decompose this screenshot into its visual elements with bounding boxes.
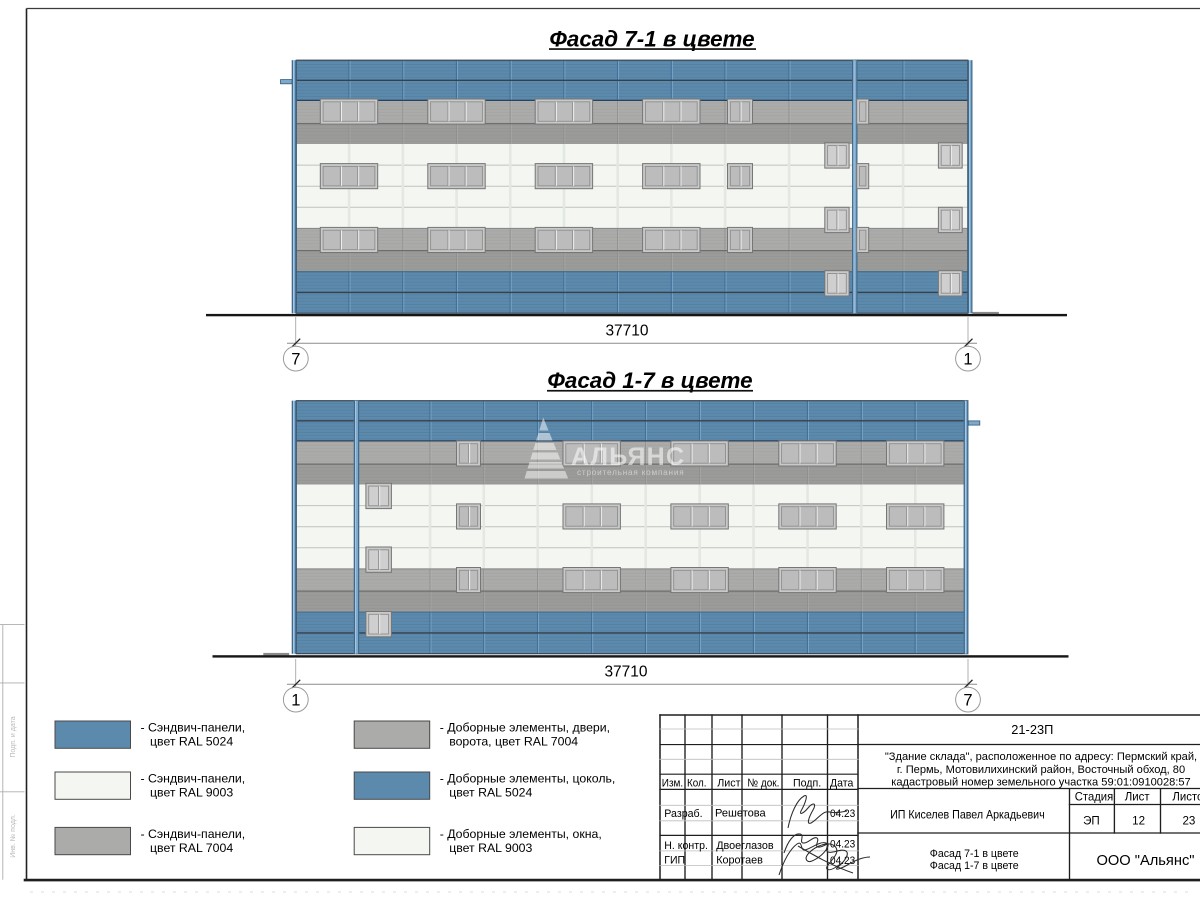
svg-text:Фасад 7-1 в цвете: Фасад 7-1 в цвете <box>930 848 1019 860</box>
svg-text:Фасад 1-7 в цвете: Фасад 1-7 в цвете <box>547 368 752 393</box>
svg-text:Двоеглазов: Двоеглазов <box>716 840 773 852</box>
svg-text:Кол.: Кол. <box>687 778 707 790</box>
svg-text:цвет RAL 5024: цвет RAL 5024 <box>150 735 233 749</box>
svg-text:ГИП: ГИП <box>664 855 685 867</box>
svg-text:04.23: 04.23 <box>830 839 855 851</box>
svg-text:ворота, цвет RAL 7004: ворота, цвет RAL 7004 <box>449 735 578 749</box>
svg-text:Лист: Лист <box>717 778 741 790</box>
svg-text:г. Пермь, Мотовилихинский райо: г. Пермь, Мотовилихинский район, Восточн… <box>897 764 1185 776</box>
svg-text:Изм.: Изм. <box>662 778 683 790</box>
svg-text:04.23: 04.23 <box>830 808 855 820</box>
svg-text:Подп. и дата: Подп. и дата <box>10 716 17 757</box>
svg-text:21-23П: 21-23П <box>1011 722 1053 737</box>
svg-text:7: 7 <box>291 351 300 369</box>
svg-text:цвет RAL 9003: цвет RAL 9003 <box>449 841 532 855</box>
svg-text:ИП Киселев Павел Аркадьевич: ИП Киселев Павел Аркадьевич <box>890 808 1045 822</box>
svg-text:Разраб.: Разраб. <box>664 808 702 820</box>
svg-text:Стадия: Стадия <box>1075 790 1113 804</box>
svg-text:АЛЬЯНС: АЛЬЯНС <box>571 443 685 471</box>
svg-text:кадастровый номер земельного у: кадастровый номер земельного участка 59:… <box>891 777 1190 789</box>
svg-text:ЭП: ЭП <box>1083 815 1100 828</box>
svg-text:- Сэндвич-панели,: - Сэндвич-панели, <box>141 772 246 786</box>
svg-text:цвет RAL 5024: цвет RAL 5024 <box>449 786 532 800</box>
svg-text:Коротаев: Коротаев <box>716 855 763 867</box>
svg-text:1: 1 <box>291 692 300 710</box>
svg-text:Фасад 7-1 в цвете: Фасад 7-1 в цвете <box>549 27 754 52</box>
svg-text:- Сэндвич-панели,: - Сэндвич-панели, <box>141 721 246 735</box>
svg-text:37710: 37710 <box>605 323 648 340</box>
svg-text:23: 23 <box>1182 815 1195 828</box>
svg-text:Инв. № подл.: Инв. № подл. <box>10 814 17 858</box>
svg-text:Лист: Лист <box>1125 790 1150 804</box>
svg-text:7: 7 <box>963 692 972 710</box>
svg-text:Подп.: Подп. <box>793 778 821 790</box>
svg-text:цвет RAL 7004: цвет RAL 7004 <box>150 841 233 855</box>
svg-text:- Доборные элементы, цоколь,: - Доборные элементы, цоколь, <box>440 772 616 786</box>
svg-text:№ док.: № док. <box>747 778 779 790</box>
svg-text:строительная компания: строительная компания <box>577 468 684 477</box>
svg-text:- Доборные элементы, двери,: - Доборные элементы, двери, <box>440 721 610 735</box>
svg-text:Дата: Дата <box>830 778 854 790</box>
svg-text:12: 12 <box>1132 815 1145 828</box>
svg-text:Листов: Листов <box>1172 790 1200 804</box>
svg-text:цвет RAL 9003: цвет RAL 9003 <box>150 786 233 800</box>
svg-text:ООО "Альянс": ООО "Альянс" <box>1097 852 1195 869</box>
svg-text:Н. контр.: Н. контр. <box>664 840 708 852</box>
svg-text:- Доборные элементы, окна,: - Доборные элементы, окна, <box>440 827 602 841</box>
svg-text:1: 1 <box>963 351 972 369</box>
svg-text:Фасад 1-7 в цвете: Фасад 1-7 в цвете <box>930 860 1019 872</box>
svg-text:- Сэндвич-панели,: - Сэндвич-панели, <box>141 827 246 841</box>
svg-text:"Здание склада", расположенное: "Здание склада", расположенное по адресу… <box>885 751 1197 763</box>
svg-text:Решетова: Решетова <box>715 808 766 820</box>
svg-text:37710: 37710 <box>604 664 647 681</box>
